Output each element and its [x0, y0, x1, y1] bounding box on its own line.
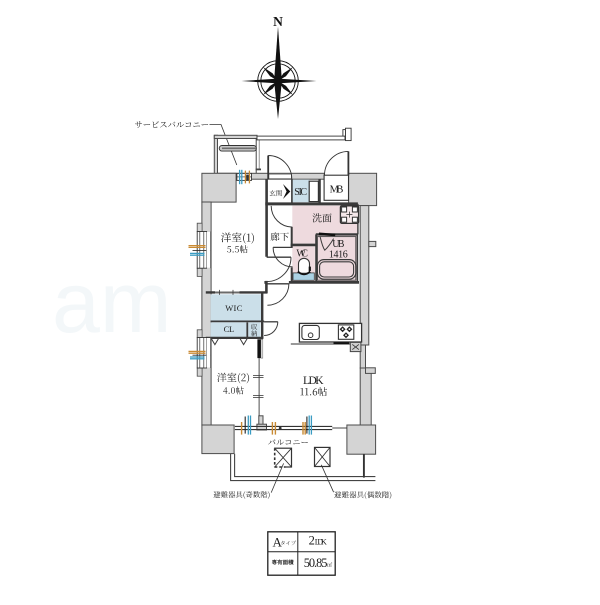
svg-text:CL: CL — [224, 324, 235, 334]
svg-text:WIC: WIC — [225, 303, 243, 313]
svg-text:MB: MB — [330, 185, 344, 196]
svg-text:LDK: LDK — [303, 375, 324, 387]
svg-text:N: N — [273, 14, 283, 29]
svg-text:1416: 1416 — [329, 249, 348, 260]
svg-text:SIC: SIC — [294, 187, 307, 198]
svg-text:am: am — [52, 255, 171, 351]
svg-text:A: A — [273, 535, 283, 550]
svg-text:LDK: LDK — [315, 537, 327, 546]
svg-text:50.85: 50.85 — [304, 556, 328, 570]
svg-text:WC: WC — [296, 248, 308, 259]
